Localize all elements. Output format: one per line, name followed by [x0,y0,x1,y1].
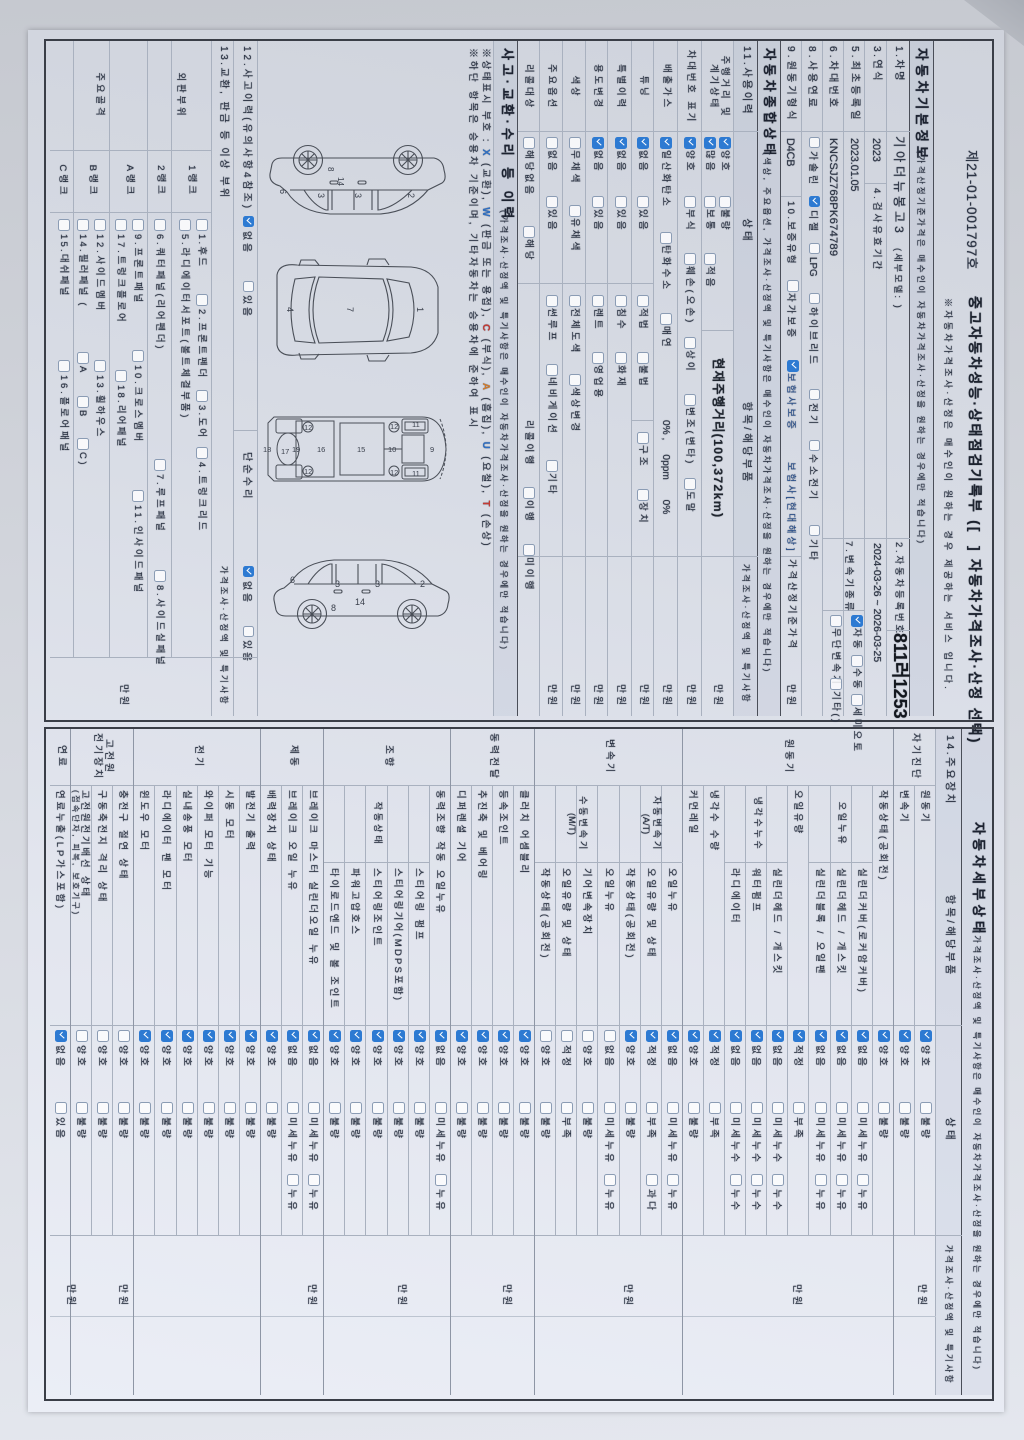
svg-text:7: 7 [345,307,355,312]
svg-text:8: 8 [326,167,335,172]
svg-text:3: 3 [353,193,363,198]
svg-text:16: 16 [317,445,325,454]
svg-text:15: 15 [357,445,365,454]
svg-text:6: 6 [278,189,288,194]
svg-text:14: 14 [355,597,365,607]
svg-text:18: 18 [263,445,271,454]
svg-text:17: 17 [281,447,289,456]
svg-text:3: 3 [316,193,326,198]
svg-text:19: 19 [292,445,300,454]
svg-text:2: 2 [420,579,425,589]
svg-text:12: 12 [390,422,398,431]
svg-text:12: 12 [304,423,312,432]
svg-text:12: 12 [304,467,312,476]
svg-text:9: 9 [430,445,434,454]
svg-text:14: 14 [336,177,345,186]
svg-text:12: 12 [390,468,398,477]
svg-text:8: 8 [331,603,336,613]
svg-text:6: 6 [290,575,295,585]
svg-text:1: 1 [415,307,425,312]
svg-text:11: 11 [412,469,420,478]
svg-text:4: 4 [285,307,295,312]
svg-text:11: 11 [412,420,420,429]
svg-text:3: 3 [335,579,340,589]
svg-text:10: 10 [388,445,396,454]
svg-text:3: 3 [375,579,380,589]
svg-text:2: 2 [406,193,416,198]
